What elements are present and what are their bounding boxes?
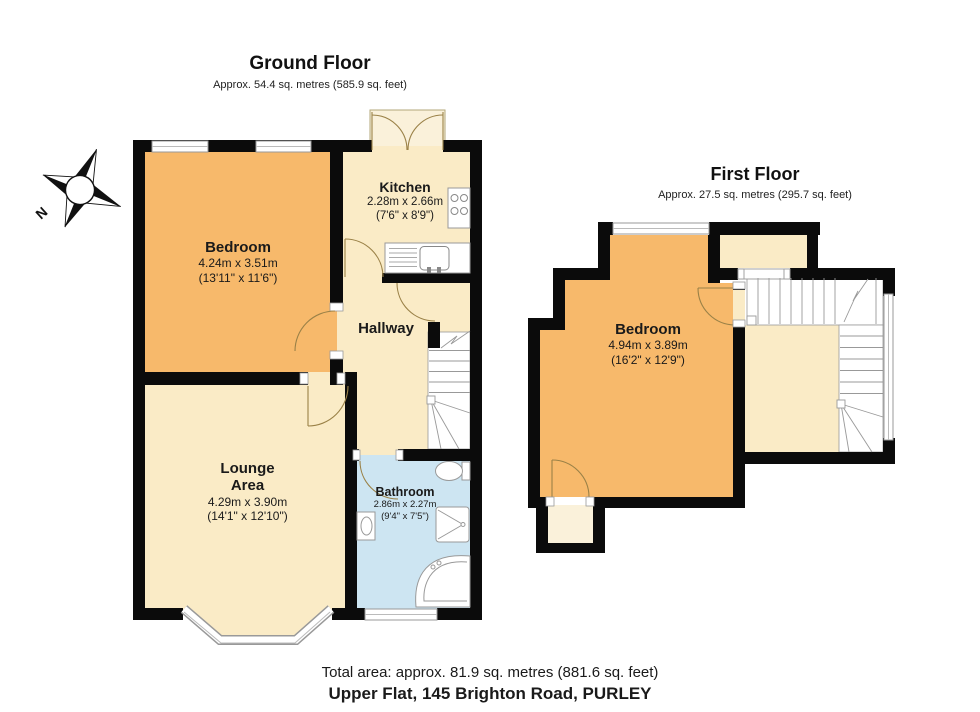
ff-alcove-floor (548, 505, 593, 543)
stairs-first-horizontal (747, 277, 883, 325)
first-floor-subtitle: Approx. 27.5 sq. metres (295.7 sq. feet) (605, 189, 905, 201)
bathroom-sink-icon (357, 512, 375, 540)
address-text: Upper Flat, 145 Brighton Road, PURLEY (215, 684, 765, 704)
ground-floor-header: Ground Floor Approx. 54.4 sq. metres (58… (155, 54, 465, 91)
ff-cupboard-floor (715, 235, 807, 268)
first-floor-header: First Floor Approx. 27.5 sq. metres (295… (605, 165, 905, 201)
hob-icon (448, 188, 470, 228)
ground-floor-title: Ground Floor (155, 54, 465, 75)
first-floor-title: First Floor (605, 165, 905, 185)
footer: Total area: approx. 81.9 sq. metres (881… (215, 664, 765, 704)
kitchen-sink-icon (385, 243, 470, 273)
bathroom-window-icon (365, 609, 437, 620)
floorplan-drawing: N (0, 0, 980, 712)
total-area-text: Total area: approx. 81.9 sq. metres (881… (215, 664, 765, 681)
ground-floor-subtitle: Approx. 54.4 sq. metres (585.9 sq. feet) (155, 79, 465, 91)
ff-landing-floor (745, 325, 839, 452)
newel-post (837, 400, 845, 408)
lounge-floor (139, 372, 355, 614)
compass-icon: N (28, 134, 137, 243)
newel-post (747, 316, 756, 325)
stair-opening-rail (738, 269, 790, 279)
ff-doorway-floor (733, 287, 745, 325)
ff-top-window-icon (613, 223, 709, 234)
compass-north-label: N (32, 204, 50, 223)
newel-post (427, 396, 435, 404)
floorplan-page: N Ground Floor Approx. 54.4 sq. metres (… (0, 0, 980, 712)
shower-icon (436, 507, 469, 542)
toilet-icon (436, 462, 471, 481)
ff-right-window-icon (884, 294, 893, 440)
bedroom-floor (139, 146, 337, 378)
